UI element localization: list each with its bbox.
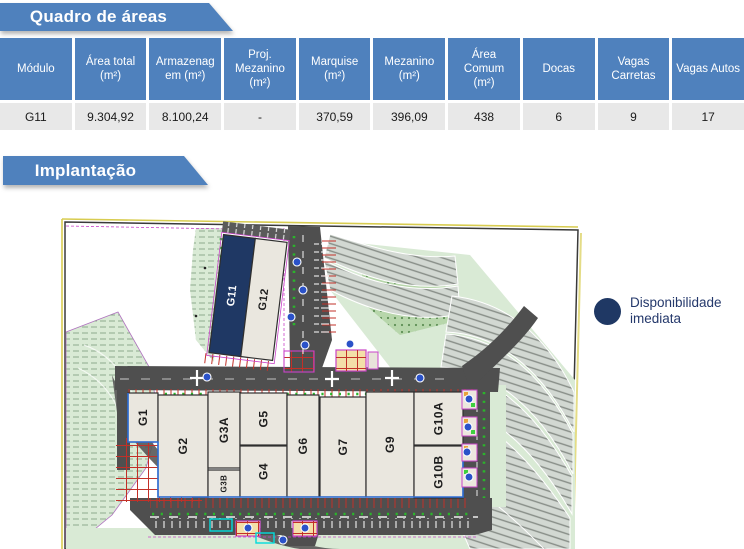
building-label-G10A: G10A xyxy=(432,402,446,435)
building-label-G3A: G3A xyxy=(217,417,231,443)
building-label-G4: G4 xyxy=(257,463,271,480)
building-label-G3B: G3B xyxy=(220,475,229,493)
page: Quadro de áreas MóduloÁrea total (m²)Arm… xyxy=(0,0,744,549)
building-label-G6: G6 xyxy=(296,437,310,454)
building-label-G10B: G10B xyxy=(432,455,446,488)
site-plan-svg: G11G12 G1G2G3AG3BG5G4G6G7G9G10AG10B xyxy=(0,0,744,549)
lower-buildings-group: G1G2G3AG3BG5G4G6G7G9G10AG10B xyxy=(128,392,463,498)
building-label-G7: G7 xyxy=(336,438,350,455)
building-label-G1: G1 xyxy=(136,409,150,426)
building-label-G9: G9 xyxy=(383,436,397,453)
building-label-G5: G5 xyxy=(257,410,271,427)
building-label-G2: G2 xyxy=(176,437,190,454)
